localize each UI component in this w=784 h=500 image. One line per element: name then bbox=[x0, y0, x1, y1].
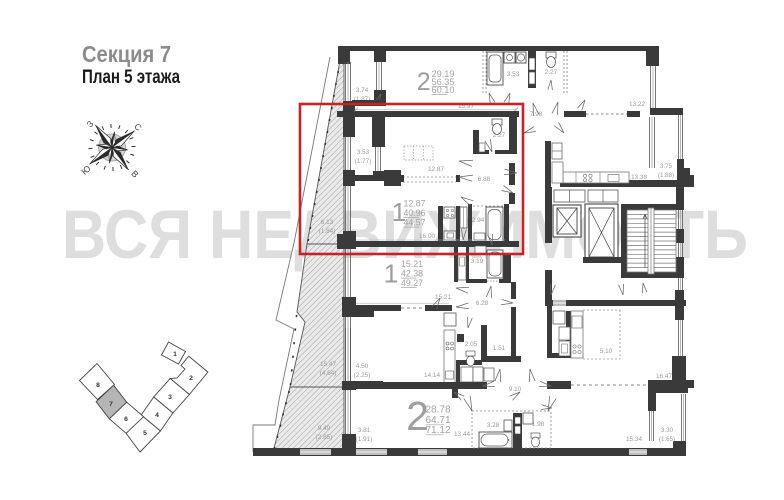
svg-text:40.96: 40.96 bbox=[404, 208, 426, 218]
svg-text:12.87: 12.87 bbox=[404, 199, 426, 209]
svg-text:15.47: 15.47 bbox=[320, 361, 336, 368]
svg-text:12.87: 12.87 bbox=[428, 166, 444, 173]
svg-text:(1.88): (1.88) bbox=[658, 172, 674, 179]
svg-text:1.98: 1.98 bbox=[532, 421, 545, 428]
svg-text:15.34: 15.34 bbox=[626, 436, 642, 443]
svg-text:2.05: 2.05 bbox=[465, 341, 478, 348]
svg-text:3.75: 3.75 bbox=[660, 163, 673, 170]
svg-text:71.12: 71.12 bbox=[426, 425, 451, 436]
svg-text:3.19: 3.19 bbox=[471, 258, 484, 265]
svg-text:2.27: 2.27 bbox=[545, 69, 558, 76]
svg-text:15.21: 15.21 bbox=[435, 294, 451, 301]
svg-text:8: 8 bbox=[96, 382, 100, 389]
svg-text:1: 1 bbox=[173, 351, 177, 358]
svg-text:3.74: 3.74 bbox=[356, 87, 369, 94]
svg-text:6.88: 6.88 bbox=[478, 176, 491, 183]
svg-text:16.47: 16.47 bbox=[656, 373, 672, 380]
svg-text:(1.84): (1.84) bbox=[319, 228, 336, 235]
svg-text:14.14: 14.14 bbox=[424, 372, 440, 379]
svg-text:2: 2 bbox=[417, 68, 431, 96]
svg-text:13.44: 13.44 bbox=[454, 431, 470, 438]
svg-text:(1.77): (1.77) bbox=[355, 158, 372, 165]
svg-text:2.94: 2.94 bbox=[472, 217, 485, 224]
svg-text:3.53: 3.53 bbox=[507, 71, 520, 78]
svg-text:3.30: 3.30 bbox=[661, 427, 674, 434]
svg-text:3.28: 3.28 bbox=[487, 422, 500, 429]
svg-text:15.21: 15.21 bbox=[401, 259, 423, 269]
svg-text:6.28: 6.28 bbox=[476, 300, 489, 307]
svg-text:9.49: 9.49 bbox=[318, 425, 331, 432]
svg-text:(2.85): (2.85) bbox=[316, 434, 333, 441]
svg-text:3.53: 3.53 bbox=[357, 149, 370, 156]
svg-text:5: 5 bbox=[143, 430, 147, 437]
svg-text:3.81: 3.81 bbox=[358, 427, 371, 434]
svg-text:44.57: 44.57 bbox=[404, 218, 426, 228]
svg-text:28.78: 28.78 bbox=[426, 405, 451, 416]
svg-text:13.38: 13.38 bbox=[631, 174, 647, 181]
svg-text:5.10: 5.10 bbox=[600, 348, 613, 355]
svg-text:(4.64): (4.64) bbox=[320, 370, 337, 377]
svg-text:(1.65): (1.65) bbox=[659, 436, 675, 443]
svg-text:(2.25): (2.25) bbox=[354, 372, 371, 379]
svg-text:7: 7 bbox=[109, 401, 113, 408]
svg-text:4: 4 bbox=[155, 412, 159, 419]
svg-text:Секция 7: Секция 7 bbox=[82, 41, 171, 67]
svg-text:2: 2 bbox=[189, 375, 193, 382]
svg-text:1: 1 bbox=[384, 259, 398, 289]
svg-text:49.27: 49.27 bbox=[401, 278, 423, 288]
svg-text:13.22: 13.22 bbox=[629, 101, 645, 108]
svg-text:1.51: 1.51 bbox=[493, 345, 506, 352]
svg-text:42.38: 42.38 bbox=[401, 269, 423, 279]
svg-text:16.00: 16.00 bbox=[419, 233, 435, 240]
svg-text:План 5 этажа: План 5 этажа bbox=[82, 67, 180, 88]
svg-text:3: 3 bbox=[168, 394, 172, 401]
svg-text:6: 6 bbox=[124, 416, 128, 423]
svg-text:6.13: 6.13 bbox=[321, 219, 334, 226]
svg-text:60.10: 60.10 bbox=[432, 85, 455, 95]
svg-text:2.27: 2.27 bbox=[493, 132, 506, 139]
svg-text:(1.91): (1.91) bbox=[356, 436, 373, 443]
svg-text:7.98: 7.98 bbox=[530, 111, 543, 118]
svg-text:4.50: 4.50 bbox=[356, 363, 369, 370]
